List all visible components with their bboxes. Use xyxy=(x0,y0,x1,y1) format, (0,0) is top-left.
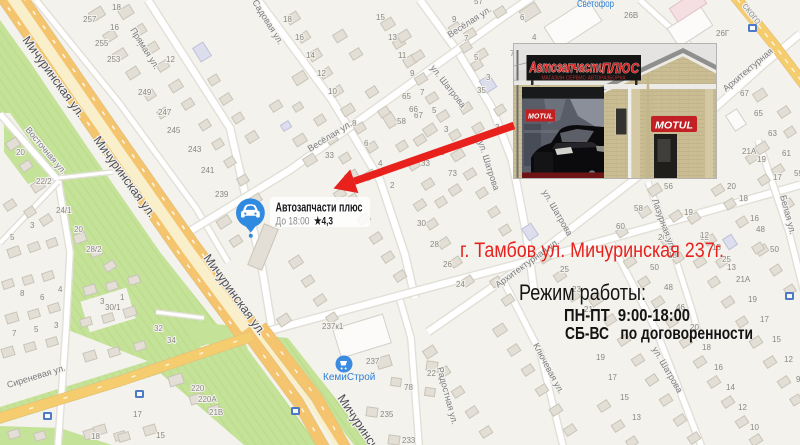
svg-text:237к1: 237к1 xyxy=(322,322,344,331)
svg-text:Автозапчасти: Автозапчасти xyxy=(529,59,605,76)
svg-text:Светофор: Светофор xyxy=(577,0,614,10)
svg-text:5: 5 xyxy=(34,325,39,334)
svg-text:4: 4 xyxy=(58,285,63,294)
svg-text:17: 17 xyxy=(133,410,142,419)
svg-text:1: 1 xyxy=(120,293,125,302)
svg-text:Режим работы:: Режим работы: xyxy=(519,280,646,305)
svg-text:253: 253 xyxy=(107,55,121,64)
svg-text:6: 6 xyxy=(364,139,369,148)
svg-text:249: 249 xyxy=(138,88,152,97)
svg-text:13: 13 xyxy=(632,413,641,422)
svg-text:21В: 21В xyxy=(209,408,223,417)
svg-text:22/2: 22/2 xyxy=(36,177,52,186)
svg-text:61: 61 xyxy=(782,149,791,158)
svg-text:50: 50 xyxy=(650,263,659,272)
svg-text:15: 15 xyxy=(376,13,385,22)
svg-text:3: 3 xyxy=(100,297,105,306)
svg-text:12: 12 xyxy=(738,403,747,412)
svg-text:г. Тамбов ул. Мичуринская 237г: г. Тамбов ул. Мичуринская 237г. xyxy=(460,238,724,262)
svg-text:32: 32 xyxy=(154,324,163,333)
svg-text:26: 26 xyxy=(443,260,452,269)
svg-text:26В: 26В xyxy=(624,11,638,20)
svg-text:18: 18 xyxy=(91,432,100,441)
svg-text:6: 6 xyxy=(40,293,45,302)
svg-text:16: 16 xyxy=(295,33,304,42)
svg-text:9: 9 xyxy=(410,69,415,78)
svg-text:63: 63 xyxy=(768,129,777,138)
svg-text:243: 243 xyxy=(188,145,202,154)
svg-text:14: 14 xyxy=(306,51,315,60)
svg-text:24: 24 xyxy=(456,280,465,289)
svg-text:12: 12 xyxy=(784,355,793,364)
svg-text:220А: 220А xyxy=(198,395,217,404)
svg-text:3: 3 xyxy=(486,73,491,82)
svg-text:ПН-ПТ 9:00-18:00: ПН-ПТ 9:00-18:00 xyxy=(564,305,690,325)
svg-text:220: 220 xyxy=(191,384,205,393)
svg-text:34: 34 xyxy=(167,336,176,345)
svg-text:58: 58 xyxy=(397,117,406,126)
svg-text:19: 19 xyxy=(748,295,757,304)
svg-text:28: 28 xyxy=(430,240,439,249)
svg-text:30/1: 30/1 xyxy=(105,303,121,312)
svg-text:257: 257 xyxy=(83,15,97,24)
svg-text:19: 19 xyxy=(596,353,605,362)
svg-text:3: 3 xyxy=(54,321,59,330)
svg-text:15: 15 xyxy=(156,431,165,440)
svg-text:48: 48 xyxy=(756,225,765,234)
svg-text:20: 20 xyxy=(74,225,83,234)
svg-text:СБ-ВС по договоренности: СБ-ВС по договоренности xyxy=(565,323,753,343)
svg-text:7: 7 xyxy=(420,88,425,97)
svg-text:28/2: 28/2 xyxy=(86,245,102,254)
svg-text:4: 4 xyxy=(378,159,383,168)
svg-text:15: 15 xyxy=(772,335,781,344)
svg-text:9: 9 xyxy=(452,15,457,24)
svg-text:5: 5 xyxy=(474,53,479,62)
svg-text:57: 57 xyxy=(474,0,483,6)
svg-text:241: 241 xyxy=(201,166,215,175)
svg-text:МАГАЗИН·СЕРВИС·АВТОРАЗБОРКА: МАГАЗИН·СЕРВИС·АВТОРАЗБОРКА xyxy=(542,76,627,82)
svg-text:Автозапчасти плюс: Автозапчасти плюс xyxy=(276,201,363,215)
svg-text:12: 12 xyxy=(166,55,175,64)
svg-text:48: 48 xyxy=(664,283,673,292)
svg-text:2: 2 xyxy=(390,181,395,190)
svg-text:13: 13 xyxy=(727,263,736,272)
svg-text:66: 66 xyxy=(409,105,418,114)
svg-text:33: 33 xyxy=(325,151,334,160)
svg-text:233: 233 xyxy=(402,436,416,445)
svg-text:22: 22 xyxy=(427,369,436,378)
svg-text:До 18:00: До 18:00 xyxy=(276,216,310,228)
svg-text:255: 255 xyxy=(95,39,109,48)
svg-text:10: 10 xyxy=(750,423,759,432)
svg-text:15: 15 xyxy=(620,393,629,402)
svg-text:67: 67 xyxy=(740,89,749,98)
svg-text:17: 17 xyxy=(608,373,617,382)
svg-text:20: 20 xyxy=(727,182,736,191)
svg-text:247: 247 xyxy=(158,108,172,117)
svg-text:13: 13 xyxy=(388,33,397,42)
svg-text:4: 4 xyxy=(532,33,537,42)
svg-text:17: 17 xyxy=(760,315,769,324)
svg-text:11: 11 xyxy=(398,51,407,60)
svg-text:9: 9 xyxy=(796,375,800,384)
svg-text:56: 56 xyxy=(664,182,673,191)
svg-text:25: 25 xyxy=(560,265,569,274)
svg-text:50: 50 xyxy=(770,245,779,254)
svg-text:16: 16 xyxy=(714,363,723,372)
svg-text:235: 235 xyxy=(380,410,394,419)
svg-text:73: 73 xyxy=(448,169,457,178)
svg-text:59: 59 xyxy=(794,169,800,178)
svg-text:8: 8 xyxy=(20,289,25,298)
svg-text:18: 18 xyxy=(739,194,748,203)
svg-text:20: 20 xyxy=(16,148,25,157)
svg-text:5: 5 xyxy=(10,233,15,242)
svg-text:17: 17 xyxy=(773,173,782,182)
svg-text:78: 78 xyxy=(404,383,413,392)
svg-text:30: 30 xyxy=(417,219,426,228)
svg-text:35: 35 xyxy=(477,86,486,95)
svg-text:21А: 21А xyxy=(736,275,751,284)
svg-text:65: 65 xyxy=(754,109,763,118)
svg-text:16: 16 xyxy=(110,23,119,32)
svg-text:5: 5 xyxy=(432,106,437,115)
svg-text:65: 65 xyxy=(402,92,411,101)
svg-text:16: 16 xyxy=(750,214,759,223)
svg-text:18: 18 xyxy=(283,15,292,24)
svg-text:★4,3: ★4,3 xyxy=(314,216,333,228)
svg-text:26Г: 26Г xyxy=(716,29,730,38)
svg-text:58: 58 xyxy=(634,204,643,213)
svg-text:60: 60 xyxy=(616,222,625,231)
svg-text:239: 239 xyxy=(215,190,229,199)
svg-text:7: 7 xyxy=(12,329,17,338)
svg-text:14: 14 xyxy=(726,383,735,392)
svg-text:237: 237 xyxy=(366,357,380,366)
svg-text:6: 6 xyxy=(520,13,525,22)
svg-text:19: 19 xyxy=(757,155,766,164)
svg-text:3: 3 xyxy=(444,125,449,134)
svg-text:MOTUL: MOTUL xyxy=(655,120,693,132)
svg-text:18: 18 xyxy=(702,343,711,352)
svg-text:КемиСтрой: КемиСтрой xyxy=(323,372,375,383)
svg-text:MOTUL: MOTUL xyxy=(528,112,553,121)
svg-text:19: 19 xyxy=(684,208,693,217)
svg-text:24/1: 24/1 xyxy=(56,206,72,215)
svg-text:245: 245 xyxy=(167,126,181,135)
svg-text:10: 10 xyxy=(328,87,337,96)
svg-text:18: 18 xyxy=(112,3,121,12)
svg-text:12: 12 xyxy=(317,69,326,78)
svg-text:7: 7 xyxy=(464,34,469,43)
svg-text:21А: 21А xyxy=(742,147,757,156)
svg-text:3: 3 xyxy=(30,221,35,230)
